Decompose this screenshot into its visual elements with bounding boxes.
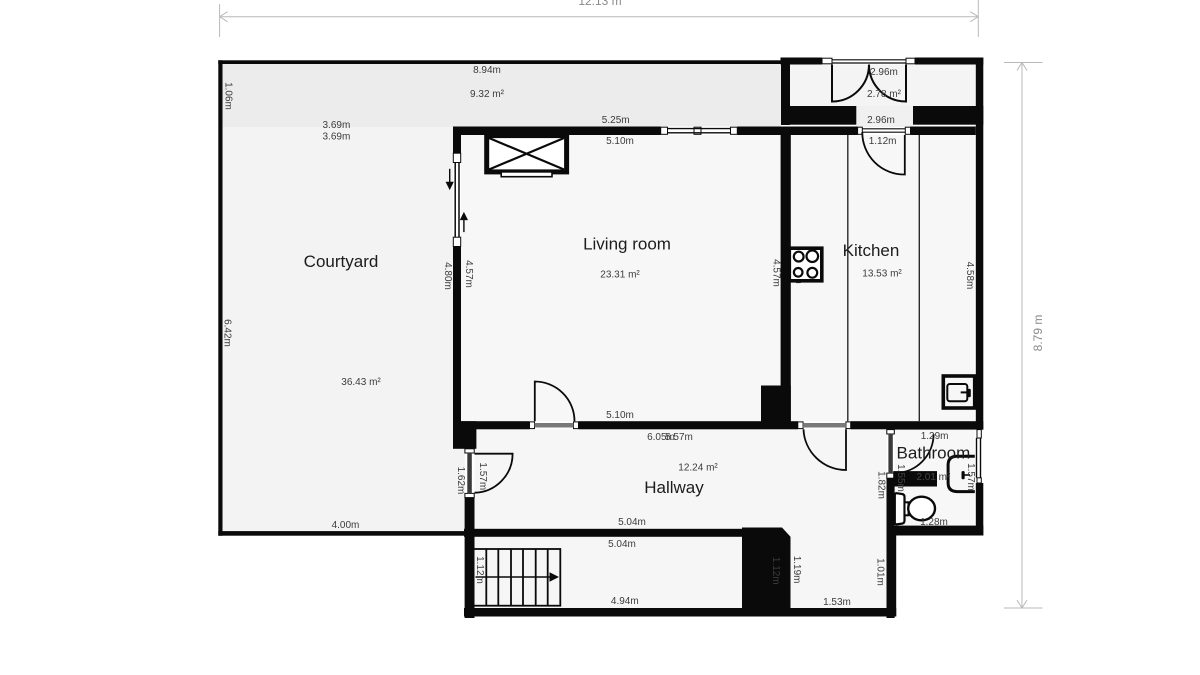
svg-text:1.62m: 1.62m	[455, 467, 466, 495]
svg-text:Kitchen: Kitchen	[843, 241, 900, 260]
svg-text:4.00m: 4.00m	[332, 520, 360, 531]
svg-text:4.94m: 4.94m	[611, 596, 639, 607]
svg-text:5.57m: 5.57m	[665, 432, 693, 443]
svg-text:1.57m: 1.57m	[477, 462, 488, 490]
svg-text:1.12m: 1.12m	[770, 557, 781, 585]
svg-text:6.42m: 6.42m	[222, 319, 233, 347]
svg-text:3.69m: 3.69m	[323, 120, 351, 131]
svg-text:36.43 m²: 36.43 m²	[341, 377, 381, 388]
svg-text:3.69m: 3.69m	[323, 132, 351, 143]
svg-text:2.96m: 2.96m	[870, 67, 898, 78]
svg-text:1.82m: 1.82m	[875, 471, 886, 499]
svg-text:4.80m: 4.80m	[442, 262, 453, 290]
svg-text:1.29m: 1.29m	[921, 431, 949, 442]
svg-text:5.10m: 5.10m	[606, 410, 634, 421]
svg-text:5.25m: 5.25m	[602, 115, 630, 126]
svg-text:Bathroom: Bathroom	[897, 444, 971, 463]
svg-text:12.13 m: 12.13 m	[578, 0, 621, 8]
svg-text:1.01m: 1.01m	[874, 558, 885, 586]
svg-text:1.12m: 1.12m	[869, 136, 897, 147]
svg-text:1.57m: 1.57m	[965, 463, 976, 491]
svg-text:5.10m: 5.10m	[606, 136, 634, 147]
svg-text:4.58m: 4.58m	[964, 262, 975, 290]
svg-text:12.24 m²: 12.24 m²	[678, 463, 718, 474]
svg-text:1.06m: 1.06m	[223, 82, 234, 110]
svg-text:23.31 m²: 23.31 m²	[600, 270, 640, 281]
svg-text:8.79 m: 8.79 m	[1031, 315, 1045, 352]
svg-text:1.12m: 1.12m	[474, 556, 485, 584]
svg-text:4.57m: 4.57m	[770, 259, 781, 287]
svg-text:13.53 m²: 13.53 m²	[862, 269, 902, 280]
svg-text:Courtyard: Courtyard	[304, 252, 379, 271]
svg-text:2.96m: 2.96m	[867, 115, 895, 126]
svg-text:Living room: Living room	[583, 235, 671, 254]
svg-text:5.04m: 5.04m	[618, 517, 646, 528]
svg-text:1.19m: 1.19m	[791, 556, 802, 584]
svg-text:1.53m: 1.53m	[823, 597, 851, 608]
svg-text:4.57m: 4.57m	[463, 260, 474, 288]
svg-text:8.94m: 8.94m	[473, 65, 501, 76]
svg-text:1.28m: 1.28m	[920, 517, 948, 528]
svg-text:Hallway: Hallway	[644, 478, 704, 497]
svg-text:2.78 m²: 2.78 m²	[867, 89, 902, 100]
svg-text:5.04m: 5.04m	[608, 539, 636, 550]
svg-text:9.32 m²: 9.32 m²	[470, 89, 505, 100]
